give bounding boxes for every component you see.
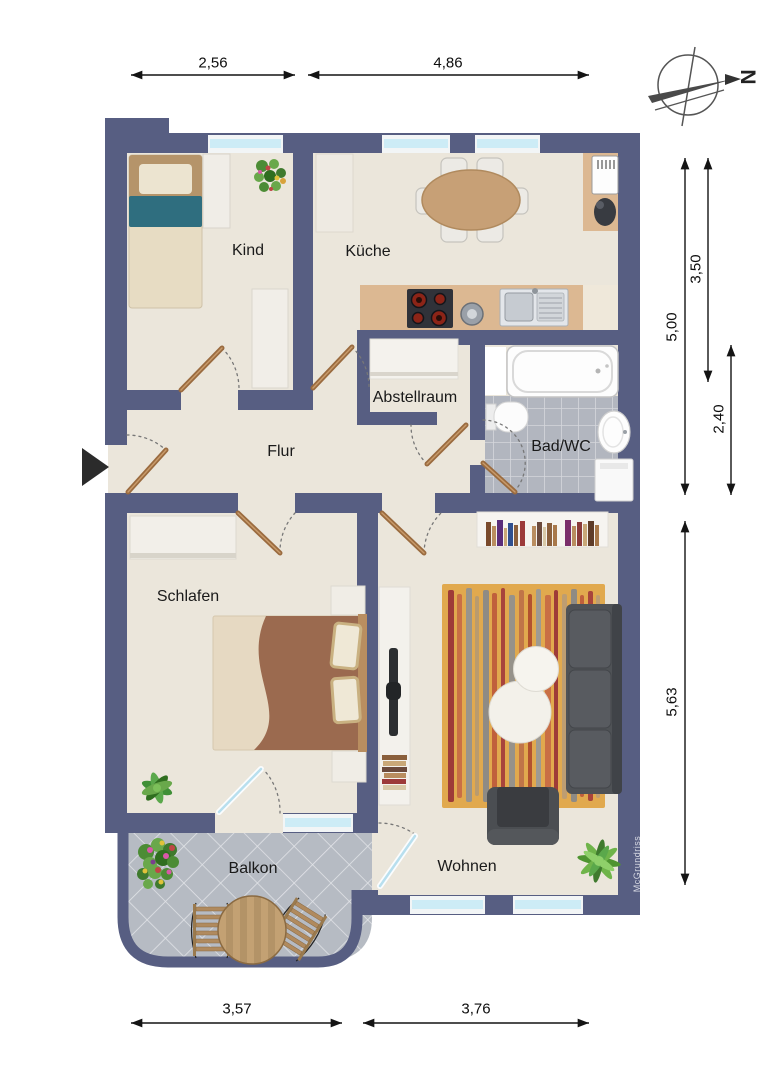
nightstand [331,586,365,615]
room-label-abstellraum: Abstellraum [373,389,457,407]
fridge-icon [592,156,618,194]
room-label-balkon: Balkon [229,860,278,878]
window-icon [410,896,485,914]
balcony-table [218,896,286,964]
dimension-right-3-50: 3,50 [688,254,705,283]
compass-icon [648,47,741,126]
dimension-right-2-40: 2,40 [711,404,728,433]
bath-niche [485,347,506,395]
dimension-bottom-left: 3,57 [222,1001,251,1018]
cabinet-kind [203,154,230,228]
coffee-machine-icon [461,303,483,325]
floor-plan-page: Kind Küche Abstellraum Flur Bad/WC Schla… [0,0,768,1087]
washing-machine-icon [595,459,633,501]
tall-cabinet-kind [252,289,288,388]
dimension-top-right: 4,86 [433,55,462,72]
window-icon [283,814,353,832]
dimension-right-5-00: 5,00 [664,312,681,341]
room-label-bad-wc: Bad/WC [531,438,591,456]
watermark: McGrundriss [632,836,642,893]
window-icon [513,896,583,914]
room-label-kueche: Küche [345,243,390,261]
dimension-right-5-63: 5,63 [664,687,681,716]
room-label-flur: Flur [267,443,295,461]
kitchen-cabinet [316,154,353,232]
bathtub-icon [507,346,618,397]
floor-plan-drawing [0,0,768,1087]
room-label-kind: Kind [232,242,264,260]
washbasin-icon [598,411,630,453]
kitchen-counter [360,285,618,330]
dimension-top-left: 2,56 [198,55,227,72]
nightstand [332,751,366,782]
entrance-arrow-icon [82,448,109,486]
small-appliance-icon [594,198,616,226]
armchair [487,787,559,845]
room-label-schlafen: Schlafen [157,588,219,606]
child-bed [129,155,202,308]
bookshelf [477,512,608,547]
sofa [566,604,622,794]
stove-icon [407,289,453,328]
kitchen-sink-icon [500,288,568,326]
wardrobe-schlafen [130,516,236,559]
window-icon [208,135,283,153]
window-icon [382,135,450,153]
compass-north-label: N [735,69,759,84]
room-label-wohnen: Wohnen [437,858,496,876]
window-icon [475,135,540,153]
dimension-bottom-right: 3,76 [461,1001,490,1018]
double-bed [213,614,367,752]
storage-shelf [370,339,458,379]
